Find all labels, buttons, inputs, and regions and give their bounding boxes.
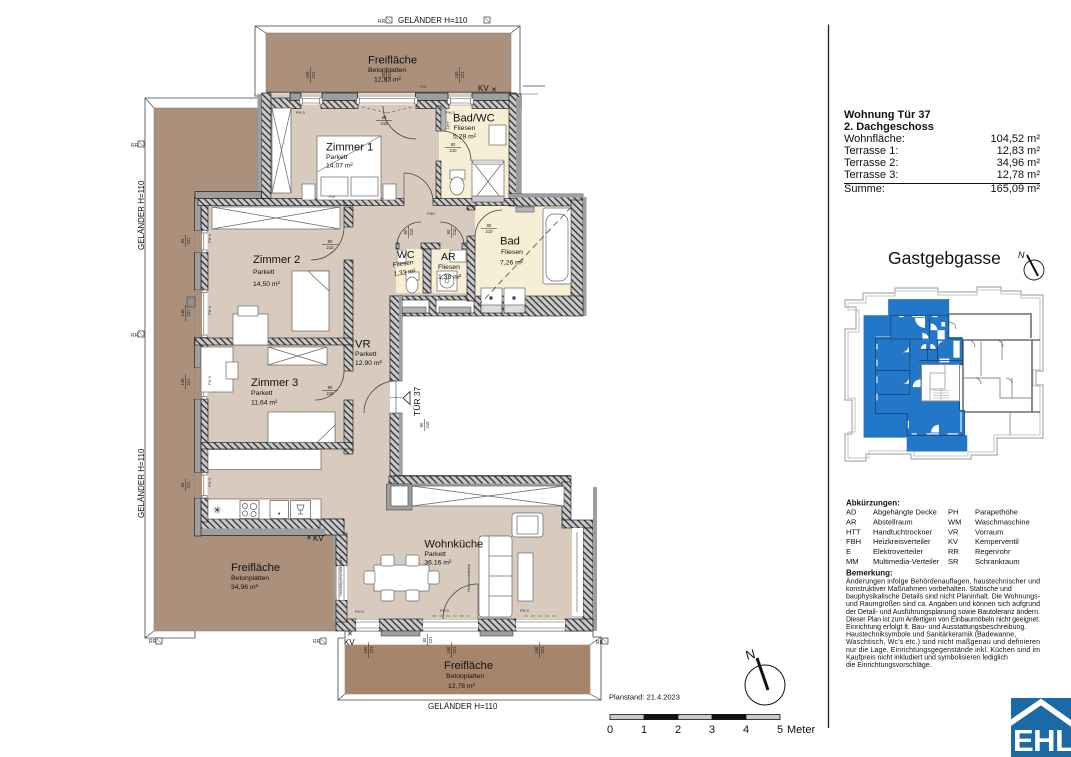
svg-text:Regenrohr: Regenrohr: [975, 547, 1011, 556]
svg-text:2: 2: [675, 724, 681, 736]
svg-text:221: 221: [186, 378, 191, 386]
svg-text:Multimedia-Verteiler: Multimedia-Verteiler: [873, 557, 940, 566]
svg-text:der Detail- und Ausführungspla: der Detail- und Ausführungsplanung sowie…: [846, 609, 1040, 616]
svg-text:AR: AR: [846, 517, 857, 526]
svg-text:Summe:: Summe:: [844, 183, 885, 195]
svg-text:FBH: FBH: [427, 211, 435, 216]
svg-text:210: 210: [381, 121, 389, 126]
svg-text:65: 65: [180, 482, 185, 487]
svg-text:Dieser Plan ist zum Anfertigen: Dieser Plan ist zum Anfertigen von Einba…: [846, 616, 1040, 623]
svg-text:PH 0: PH 0: [207, 477, 212, 487]
svg-text:90: 90: [403, 229, 408, 234]
svg-text:KV: KV: [948, 537, 958, 546]
svg-text:Handtuchtrockner: Handtuchtrockner: [873, 527, 933, 536]
svg-text:1,38 m²: 1,38 m²: [438, 274, 462, 281]
svg-text:RR: RR: [378, 19, 386, 25]
svg-text:Kemperventil: Kemperventil: [975, 537, 1019, 546]
svg-text:AR: AR: [441, 251, 456, 263]
svg-text:✕: ✕: [347, 631, 353, 638]
svg-text:5: 5: [777, 724, 783, 736]
svg-text:✕: ✕: [491, 87, 497, 94]
svg-text:Parkett: Parkett: [424, 551, 446, 558]
svg-text:Gastgebgasse: Gastgebgasse: [888, 248, 1001, 268]
svg-text:221: 221: [452, 646, 457, 654]
svg-text:Betonplatten: Betonplatten: [231, 575, 269, 582]
svg-text:Waschtisch, Wc's etc.) sind ni: Waschtisch, Wc's etc.) sind nicht maßgen…: [846, 639, 1040, 646]
svg-text:Betonplatten: Betonplatten: [446, 673, 484, 680]
svg-text:SR: SR: [948, 557, 959, 566]
svg-text:VR: VR: [355, 338, 371, 350]
svg-text:PH 0: PH 0: [440, 608, 450, 613]
svg-text:konstruktiver Maßnahmen vorbeh: konstruktiver Maßnahmen vorbehalten. Sta…: [846, 586, 1012, 593]
svg-text:210: 210: [450, 148, 458, 153]
svg-text:Heizkörperverkleidung: Heizkörperverkleidung: [338, 556, 343, 596]
svg-text:PH: PH: [948, 508, 958, 517]
svg-text:221: 221: [186, 481, 191, 489]
svg-text:12,78 m²: 12,78 m²: [448, 683, 476, 690]
svg-text:221: 221: [186, 309, 191, 317]
svg-text:210: 210: [452, 228, 457, 236]
svg-text:90: 90: [419, 422, 424, 427]
svg-text:Zimmer 1: Zimmer 1: [326, 142, 373, 154]
svg-text:221: 221: [387, 71, 392, 79]
svg-text:Kaufpreis nicht inkludiert und: Kaufpreis nicht inkludiert und symbolisi…: [846, 654, 1008, 661]
svg-text:und Raumgrößen sind ca. Angabe: und Raumgrößen sind ca. Angaben und könn…: [846, 601, 1040, 608]
svg-text:14,07 m²: 14,07 m²: [326, 163, 354, 170]
svg-text:80: 80: [422, 637, 427, 642]
svg-text:Bemerkung:: Bemerkung:: [846, 569, 893, 578]
svg-text:PH 0: PH 0: [296, 110, 306, 115]
svg-text:die Einrichtungsvorschläge.: die Einrichtungsvorschläge.: [846, 662, 932, 669]
svg-text:PH 0: PH 0: [207, 305, 212, 315]
svg-text:GELÄNDER H=110: GELÄNDER H=110: [398, 16, 468, 25]
svg-text:221: 221: [369, 646, 374, 654]
svg-text:Terrasse 2:: Terrasse 2:: [844, 157, 898, 169]
svg-text:RR: RR: [313, 639, 321, 645]
svg-text:221: 221: [311, 71, 316, 79]
svg-text:Wohnung Tür 37: Wohnung Tür 37: [844, 109, 931, 121]
svg-text:FIX: FIX: [420, 84, 427, 89]
svg-text:N: N: [1018, 250, 1025, 260]
svg-text:WM: WM: [948, 517, 961, 526]
svg-text:Abstellraum: Abstellraum: [873, 517, 913, 526]
svg-text:165,09 m²: 165,09 m²: [990, 183, 1040, 195]
svg-text:Parapethöhe: Parapethöhe: [975, 508, 1018, 517]
svg-text:Wohnküche: Wohnküche: [424, 539, 483, 551]
svg-text:80: 80: [487, 223, 492, 228]
svg-text:PH 0: PH 0: [520, 608, 530, 613]
svg-text:148: 148: [180, 378, 185, 386]
svg-text:80: 80: [451, 142, 456, 147]
svg-text:MM: MM: [846, 557, 859, 566]
svg-text:Terrasse 3:: Terrasse 3:: [844, 169, 898, 181]
svg-text:210: 210: [327, 391, 335, 396]
svg-text:Freifläche: Freifläche: [444, 660, 493, 672]
svg-text:14,50 m²: 14,50 m²: [253, 281, 281, 288]
svg-text:250: 250: [381, 71, 386, 79]
svg-text:Abgehängte Decke: Abgehängte Decke: [873, 508, 937, 517]
svg-text:190: 190: [446, 646, 451, 654]
svg-text:HTT: HTT: [846, 527, 861, 536]
svg-text:Bad/WC: Bad/WC: [453, 113, 495, 125]
svg-text:nur die Lage. Einrichtungsgege: nur die Lage. Einrichtungsgegenstände in…: [846, 647, 1040, 654]
svg-text:12,90 m²: 12,90 m²: [355, 360, 383, 367]
svg-text:80: 80: [328, 239, 333, 244]
svg-text:Hebeschiebetür: Hebeschiebetür: [466, 563, 471, 592]
svg-text:KV: KV: [344, 638, 355, 647]
svg-text:Parkett: Parkett: [251, 390, 273, 397]
svg-text:210: 210: [409, 228, 414, 236]
svg-text:Parkett: Parkett: [253, 269, 275, 276]
svg-text:Parkett: Parkett: [355, 351, 377, 358]
svg-text:KV: KV: [313, 534, 324, 543]
svg-text:100: 100: [454, 71, 459, 79]
svg-text:PH 0: PH 0: [207, 233, 212, 243]
svg-text:bauphysikalische Details sind: bauphysikalische Details sind nicht Plan…: [846, 594, 1041, 601]
svg-text:EHL: EHL: [1013, 723, 1071, 757]
svg-text:AD: AD: [846, 508, 857, 517]
svg-text:12,78 m²: 12,78 m²: [997, 169, 1041, 181]
svg-text:Meter: Meter: [787, 724, 815, 736]
svg-text:104,52 m²: 104,52 m²: [990, 133, 1040, 145]
svg-text:1: 1: [641, 724, 647, 736]
svg-text:2. Dachgeschoss: 2. Dachgeschoss: [844, 121, 934, 133]
svg-text:34,96 m²: 34,96 m²: [231, 584, 259, 591]
svg-text:RR: RR: [131, 333, 139, 339]
svg-text:221: 221: [460, 71, 465, 79]
svg-text:TÜR 37: TÜR 37: [412, 386, 422, 416]
svg-text:221: 221: [186, 237, 191, 245]
svg-text:GELÄNDER H=110: GELÄNDER H=110: [137, 448, 146, 518]
svg-text:65: 65: [180, 238, 185, 243]
svg-text:Änderungen infolge Behördenauf: Änderungen infolge Behördenauflagen, hau…: [846, 577, 1040, 585]
svg-text:GELÄNDER H=110: GELÄNDER H=110: [137, 180, 146, 250]
svg-text:405: 405: [305, 71, 310, 79]
svg-text:Planstand: 21.4.2023: Planstand: 21.4.2023: [609, 693, 680, 702]
svg-text:36,16 m²: 36,16 m²: [424, 560, 452, 567]
svg-text:Schrankraum: Schrankraum: [975, 557, 1020, 566]
svg-text:80: 80: [382, 115, 387, 120]
svg-text:Bad: Bad: [500, 236, 520, 248]
svg-text:Vorraum: Vorraum: [975, 527, 1003, 536]
svg-text:Elektroverteiler: Elektroverteiler: [873, 547, 924, 556]
svg-text:Heizkreisverteiler: Heizkreisverteiler: [873, 537, 931, 546]
svg-text:Fliesen: Fliesen: [438, 264, 460, 271]
svg-text:Freifläche: Freifläche: [231, 562, 280, 574]
svg-text:0: 0: [607, 724, 613, 736]
svg-text:Fliesen: Fliesen: [454, 125, 476, 132]
svg-text:RR: RR: [149, 639, 157, 645]
svg-text:3: 3: [709, 724, 715, 736]
svg-text:✕: ✕: [306, 535, 312, 542]
svg-text:210: 210: [486, 229, 494, 234]
svg-text:Freifläche: Freifläche: [368, 55, 417, 67]
svg-text:210: 210: [327, 245, 335, 250]
svg-text:221: 221: [428, 636, 433, 644]
svg-text:Abkürzungen:: Abkürzungen:: [846, 499, 900, 508]
svg-text:FIX: FIX: [329, 194, 336, 199]
svg-text:HTT: HTT: [446, 121, 451, 129]
svg-text:PH 0: PH 0: [355, 609, 365, 614]
svg-text:90: 90: [446, 229, 451, 234]
svg-text:PH 0: PH 0: [446, 110, 456, 115]
svg-text:11,64 m²: 11,64 m²: [251, 400, 278, 407]
svg-text:RR: RR: [131, 143, 139, 149]
svg-text:190: 190: [534, 646, 539, 654]
svg-text:4: 4: [743, 724, 749, 736]
svg-text:34,96 m²: 34,96 m²: [997, 157, 1041, 169]
svg-text:Fliesen: Fliesen: [501, 249, 523, 256]
svg-text:PH 0: PH 0: [207, 375, 212, 385]
svg-text:221: 221: [540, 646, 545, 654]
svg-text:5,28 m²: 5,28 m²: [453, 134, 477, 141]
svg-text:100: 100: [363, 646, 368, 654]
svg-text:Wohnfläche:: Wohnfläche:: [844, 133, 905, 145]
svg-text:Parkett: Parkett: [326, 154, 348, 161]
svg-text:Zimmer 2: Zimmer 2: [253, 254, 300, 266]
svg-text:VR: VR: [948, 527, 959, 536]
svg-text:KV: KV: [478, 84, 489, 93]
svg-text:210: 210: [425, 421, 430, 429]
svg-text:Waschmaschine: Waschmaschine: [975, 517, 1030, 526]
svg-text:Haustechniksymbole und Sanitär: Haustechniksymbole und Sanitärkeramik (B…: [846, 632, 1016, 639]
svg-text:✳: ✳: [213, 506, 221, 517]
svg-text:Zimmer 3: Zimmer 3: [251, 377, 298, 389]
svg-text:80: 80: [328, 385, 333, 390]
svg-text:RR: RR: [948, 547, 959, 556]
svg-text:GELÄNDER H=110: GELÄNDER H=110: [428, 702, 498, 711]
svg-text:E: E: [846, 547, 851, 556]
svg-text:Einrichtung erfolgt lt. Bau- u: Einrichtung erfolgt lt. Bau- und Ausstat…: [846, 624, 1026, 631]
svg-text:148: 148: [180, 309, 185, 317]
svg-text:12,83 m²: 12,83 m²: [997, 145, 1041, 157]
svg-text:7,26 m²: 7,26 m²: [500, 260, 524, 267]
svg-text:FBH: FBH: [846, 537, 861, 546]
svg-text:Terrasse 1:: Terrasse 1:: [844, 145, 898, 157]
